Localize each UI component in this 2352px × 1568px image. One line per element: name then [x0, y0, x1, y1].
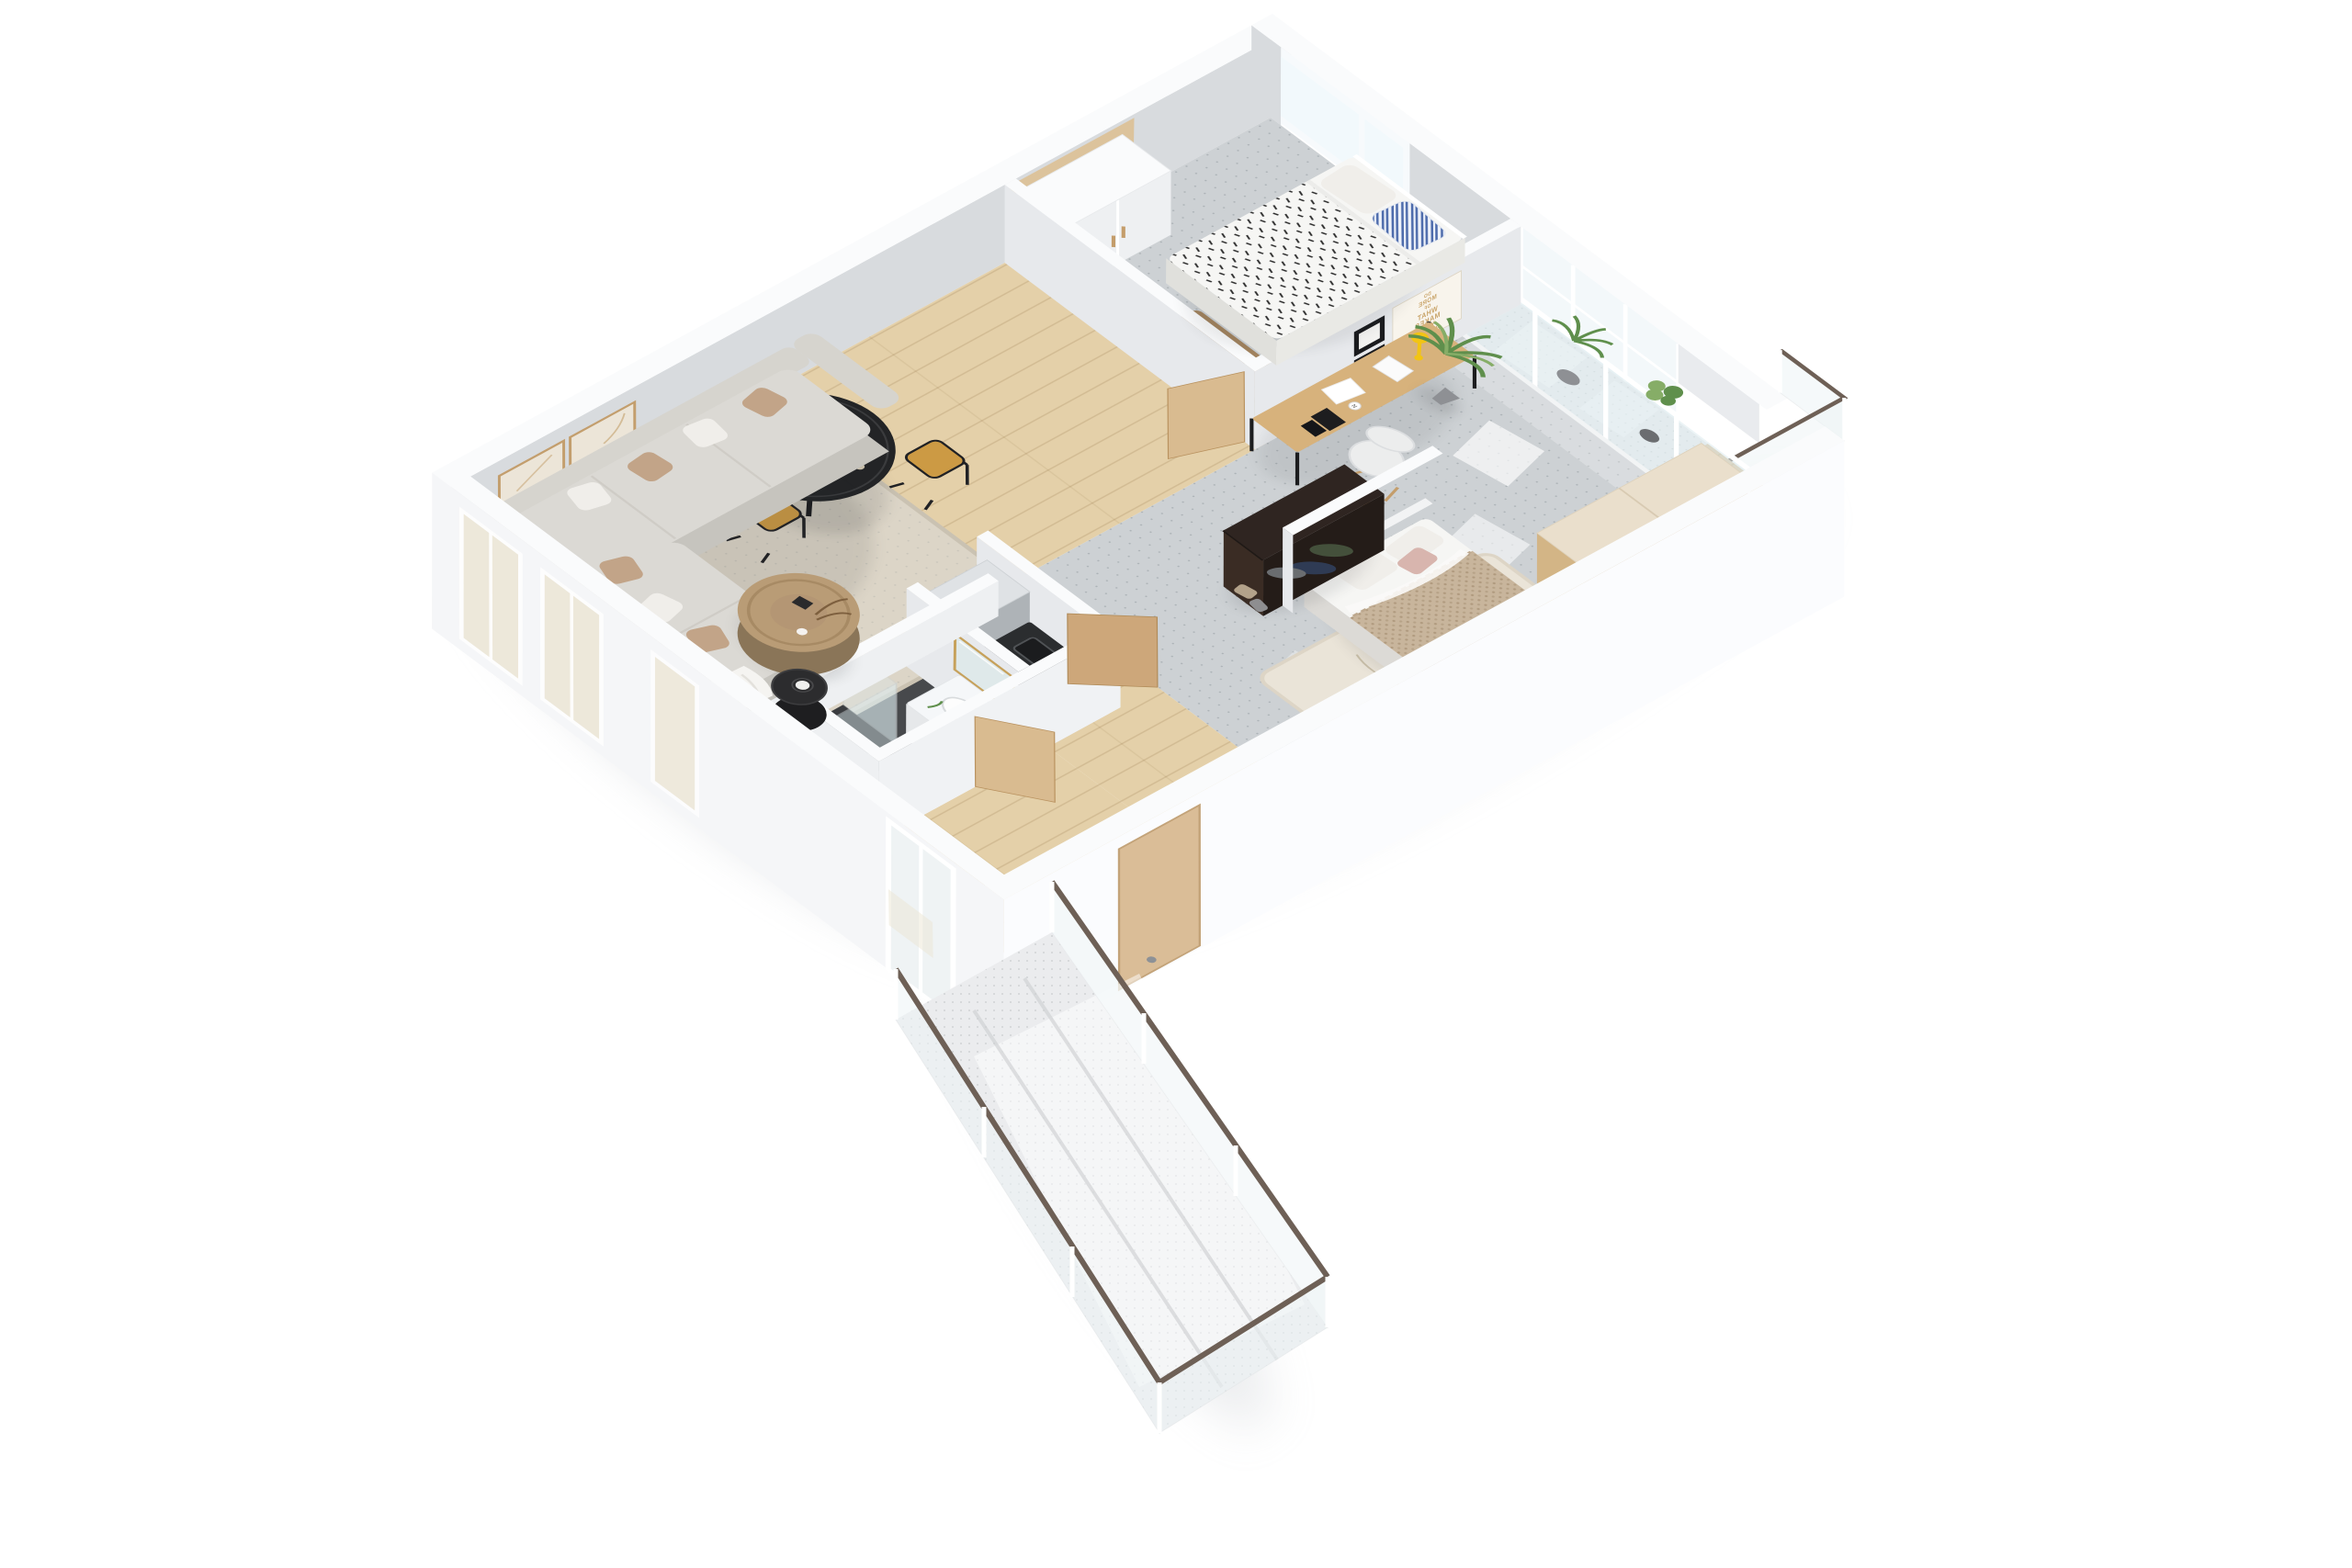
apartment-3d-render: DO MORE OF WHAT MAKES YOU HAPPY. — [0, 0, 2352, 1568]
apartment-block: DO MORE OF WHAT MAKES YOU HAPPY. — [311, 0, 1998, 1055]
floorplan-canvas: DO MORE OF WHAT MAKES YOU HAPPY. — [0, 0, 2352, 1568]
